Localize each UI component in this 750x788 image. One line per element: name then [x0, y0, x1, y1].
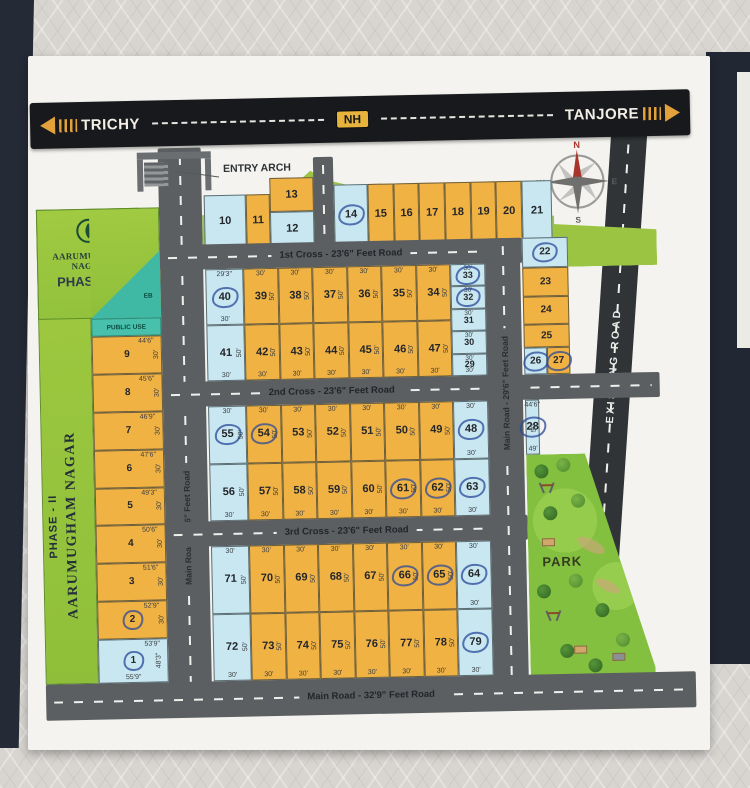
plot-dimension: 50' — [269, 291, 276, 300]
plot-dimension: 30' — [325, 269, 334, 276]
entry-connector-road — [313, 157, 335, 245]
plot-20: 20 — [496, 181, 523, 242]
plot-number: 9 — [124, 350, 130, 360]
plot-dimension: 30' — [402, 668, 411, 675]
plot-62: 6250'30' — [420, 459, 456, 517]
plot-dimension: 50' — [311, 641, 318, 650]
plot-dimension: 30' — [225, 548, 234, 555]
plot-number: 47 — [428, 343, 440, 354]
plot-dimension: 30' — [362, 405, 371, 412]
plot-72: 7250'30' — [212, 613, 251, 681]
plot-dimension: 30' — [333, 670, 342, 677]
plot-47: 4750'30' — [417, 320, 453, 377]
arrow-hatch-icon — [59, 119, 77, 132]
tree-icon — [537, 584, 551, 598]
plot-22: 22 — [522, 237, 569, 268]
plot-57: 5750'30' — [247, 462, 283, 520]
plot-dimension: 30' — [368, 669, 377, 676]
plot-dimension: 30' — [399, 508, 408, 515]
plot-dimension: 50' — [304, 291, 311, 300]
plot-dimension: 30' — [331, 546, 340, 553]
plot-73: 7350'30' — [250, 612, 286, 680]
plot-dimension: 30' — [223, 408, 232, 415]
plot-37: 30'3750' — [312, 266, 348, 323]
plot-dimension: 50' — [446, 483, 453, 492]
plot-dimension: 30' — [330, 510, 339, 517]
plot-dimension: 50' — [241, 575, 248, 584]
plot-dimension: 50' — [410, 426, 417, 435]
plot-7: 46'9"730' — [93, 411, 164, 450]
plot-dimension: 30' — [364, 509, 373, 516]
plot-number: 52 — [327, 427, 339, 438]
plot-number: 35 — [393, 288, 405, 299]
plot-dimension: 30' — [430, 368, 439, 375]
road-dashes — [171, 384, 652, 396]
plot-dimension: 30' — [434, 543, 443, 550]
plot-dimension: 50' — [444, 425, 451, 434]
plot-dimension: 30' — [228, 672, 237, 679]
plot-number: 70 — [261, 573, 273, 584]
compass-n: N — [573, 140, 580, 150]
compass-e: E — [611, 176, 617, 186]
plot-66: 30'6650' — [387, 542, 423, 610]
plot-dimension: 50' — [442, 288, 449, 297]
plot-number: 78 — [435, 637, 447, 648]
hut-icon — [574, 645, 587, 653]
plot-19: 19 — [470, 181, 497, 242]
plot-dimension: 30' — [327, 370, 336, 377]
plot-row-56-63: 5650'30'5750'30'5850'30'5950'30'6050'30'… — [209, 458, 490, 521]
plot-dimension: 50' — [449, 638, 456, 647]
plot-23: 23 — [522, 267, 569, 297]
plot-2: 52'9"230' — [97, 600, 168, 639]
plot-21: 21 — [521, 180, 552, 241]
plot-5: 49'3"530' — [95, 487, 166, 526]
plot-number: 48 — [465, 424, 477, 435]
plot-56: 5650'30' — [209, 463, 248, 521]
plot-number: 31 — [464, 315, 474, 324]
plot-number: 74 — [297, 640, 309, 651]
plot-59: 5950'30' — [316, 461, 352, 519]
plot-26: 26 — [524, 347, 548, 374]
road-dashes — [178, 156, 192, 692]
plot-68: 30'6850' — [318, 543, 354, 611]
plot-dimension: 30' — [158, 615, 165, 624]
plot-dimension: 50' — [242, 642, 249, 651]
plot-50: 30'5050' — [384, 402, 420, 460]
plot-28: 44'6"2850'49' — [525, 399, 540, 454]
plot-dimension: 50' — [276, 642, 283, 651]
plot-dimension: 30' — [154, 425, 161, 434]
plot-number: 73 — [262, 641, 274, 652]
plot-70: 30'7050' — [249, 545, 285, 613]
plot-dimension: 30' — [359, 268, 368, 275]
tree-icon — [616, 633, 630, 647]
plot-32: 30'32 — [451, 286, 486, 309]
entry-arch-label: ENTRY ARCH — [223, 162, 291, 175]
plot-29: 30'2930' — [452, 353, 487, 376]
plot-dimension: 30' — [293, 406, 302, 413]
plot-dimension: 30' — [361, 369, 370, 376]
plot-dimension: 50' — [345, 640, 352, 649]
plot-dimension: 30' — [156, 501, 163, 510]
plot-number: 51 — [361, 426, 373, 437]
plot-number: 42 — [256, 347, 268, 358]
park-path — [594, 576, 622, 597]
main-road-right-label: Main Road - 29'6" Feet Road — [499, 328, 512, 458]
plot-71: 30'7150' — [211, 546, 250, 614]
plot-number: 12 — [286, 223, 298, 234]
plot-number: 61 — [397, 483, 409, 494]
plot-dimension: 50' — [414, 639, 421, 648]
plot-dimension: 30' — [158, 577, 165, 586]
plot-10: 10 — [204, 195, 247, 248]
plot-dimension: 30' — [262, 547, 271, 554]
plot-number: 75 — [331, 639, 343, 650]
destination-left: TRICHY — [81, 115, 140, 133]
plot-dimension: 50' — [447, 570, 454, 579]
plot-dimension: 30' — [264, 671, 273, 678]
plot-dimension: 30' — [292, 370, 301, 377]
playground-icon — [545, 610, 563, 621]
plot-number: 66 — [399, 570, 411, 581]
plot-pair: 2627 — [524, 347, 571, 375]
plot-dimension: 50' — [339, 346, 346, 355]
plot-dimension: 30' — [153, 350, 160, 359]
plot-number: 62 — [431, 482, 443, 493]
plot-dimension: 30' — [365, 545, 374, 552]
plot-65: 30'6550' — [421, 541, 457, 609]
plot-dimension: 50' — [239, 487, 246, 496]
plot-dimension: 30' — [471, 667, 480, 674]
plot-number: 68 — [330, 572, 342, 583]
plot-dimension: 50' — [375, 427, 382, 436]
plot-75: 7550'30' — [319, 611, 355, 679]
cross-road-3-label: 3rd Cross - 23'6" Feet Road — [277, 524, 417, 538]
plot-dimension: 30' — [155, 463, 162, 472]
plot-dimension: 50' — [341, 428, 348, 437]
plot-55: 30'5550' — [208, 406, 247, 464]
cross-road-1-label: 1st Cross - 23'6" Feet Road — [271, 247, 410, 261]
park-label: PARK — [542, 554, 582, 570]
paper-sliver — [737, 72, 750, 348]
block-1: 29'3"4030'30'3950'30'3850'30'3750'30'365… — [205, 264, 452, 381]
plot-number: 40 — [219, 291, 231, 302]
west-plot-column: 44'6"930'45'6"830'46'9"730'47'6"630'49'3… — [92, 335, 169, 683]
plot-dimension: 50' — [338, 290, 345, 299]
plot-number: 39 — [255, 291, 267, 302]
public-use-band: PUBLIC USE — [91, 317, 161, 336]
plot-dimension: 52'9" — [144, 603, 160, 610]
plot-stack: 1312 — [269, 177, 314, 246]
plot-61: 6150'30' — [385, 459, 421, 517]
plot-number: 56 — [223, 487, 235, 498]
plot-dimension: 53'9" — [144, 640, 160, 647]
plot-48: 30'4830' — [453, 401, 489, 459]
plot-3: 51'6"330' — [96, 563, 167, 602]
plot-38: 30'3850' — [278, 267, 314, 324]
plot-number: 6 — [126, 464, 132, 474]
plot-number: 5 — [127, 501, 133, 511]
existing-road-label: EXISTING ROAD — [604, 308, 624, 424]
plot-dimension: 50' — [275, 574, 282, 583]
arch-beam — [137, 151, 211, 160]
plot-dimension: 30' — [261, 511, 270, 518]
plot-number: 38 — [289, 290, 301, 301]
plot-number: 54 — [258, 428, 270, 439]
plot-dimension: 50' — [237, 430, 244, 439]
plot-dimension: 44'6" — [524, 401, 540, 408]
plot-45: 4550'30' — [348, 322, 384, 379]
tree-icon — [588, 658, 602, 672]
arrow-right-icon — [665, 103, 680, 121]
plot-dimension: 50' — [443, 344, 450, 353]
plot-column-29-33: 30'3330'3230'3130'3030'2930' — [450, 264, 487, 377]
block-3: 30'7150'30'7050'30'6950'30'6850'30'6750'… — [211, 540, 494, 681]
plot-number: 59 — [328, 484, 340, 495]
plot-dimension: 50' — [272, 429, 279, 438]
plot-number: 63 — [466, 481, 478, 492]
plot-dimension: 50' — [308, 486, 315, 495]
plot-number: 41 — [220, 347, 232, 358]
plot-number: 69 — [295, 573, 307, 584]
plot-number: 26 — [530, 356, 541, 366]
plot-number: 1 — [130, 656, 136, 666]
plot-number: 55 — [221, 429, 233, 440]
public-use-label: PUBLIC USE — [107, 323, 147, 331]
plot-27: 27 — [547, 347, 571, 374]
plot-42: 4250'30' — [244, 324, 280, 381]
plot-64: 30'6430' — [456, 540, 492, 608]
plot-number: 36 — [358, 288, 370, 299]
plot-dimension: 51'6" — [143, 565, 159, 572]
cross-road-2-label: 2nd Cross - 23'6" Feet Road — [261, 384, 403, 398]
plot-dimension: 30' — [154, 388, 161, 397]
plot-dimension: 48'3" — [156, 653, 163, 669]
plot-58: 5850'30' — [282, 462, 318, 520]
plot-number: 21 — [531, 205, 543, 216]
road-dash-line — [381, 114, 553, 120]
plot-number: 33 — [463, 271, 473, 280]
plot-dimension: 50' — [344, 573, 351, 582]
plot-number: 16 — [400, 208, 412, 219]
plot-number: 27 — [553, 355, 564, 365]
plot-number: 71 — [224, 574, 236, 585]
plot-35: 30'3550' — [381, 265, 417, 322]
plot-17: 17 — [419, 182, 446, 243]
hut-icon — [612, 653, 625, 661]
plot-18: 18 — [444, 182, 471, 243]
plot-dimension: 30' — [466, 367, 475, 374]
plot-9: 44'6"930' — [92, 335, 163, 374]
plot-number: 79 — [469, 636, 481, 647]
plot-25: 25 — [523, 324, 569, 348]
plot-77: 7750'30' — [388, 609, 424, 677]
plot-4: 50'6"430' — [96, 525, 167, 564]
arrow-left-icon — [40, 117, 55, 135]
plot-dimension: 44'6" — [138, 337, 154, 344]
plot-number: 7 — [126, 426, 132, 436]
plot-number: 37 — [324, 289, 336, 300]
plot-74: 7450'30' — [285, 612, 321, 680]
plot-number: 3 — [129, 577, 135, 587]
plot-dimension: 30' — [470, 599, 479, 606]
plot-41: 4150'30' — [206, 325, 245, 382]
plot-number: 34 — [427, 287, 439, 298]
plot-dimension: 30' — [328, 406, 337, 413]
plot-dimension: 50' — [236, 348, 243, 357]
plot-dimension: 30' — [157, 539, 164, 548]
plot-12: 12 — [270, 211, 315, 246]
plot-number: 44 — [325, 345, 337, 356]
plot-30: 30'30 — [452, 331, 487, 354]
block-2: 30'5550'30'5450'30'5350'30'5250'30'5150'… — [208, 401, 490, 522]
plot-dimension: 30' — [400, 544, 409, 551]
plot-dimension: 50' — [407, 288, 414, 297]
plot-dimension: 30' — [396, 368, 405, 375]
map-content: EXISTING ROAD TRICHY NH TANJORE Main Ro — [21, 49, 717, 757]
destination-right: TANJORE — [565, 105, 639, 124]
arrow-hatch-icon — [643, 106, 661, 119]
plot-36: 30'3650' — [347, 266, 383, 323]
plot-number: 2 — [130, 615, 136, 625]
plot-11: 11 — [246, 194, 271, 246]
plot-number: 32 — [463, 293, 473, 302]
tree-icon — [543, 506, 557, 520]
plot-dimension: 50' — [408, 344, 415, 353]
plot-dimension: 30' — [466, 403, 475, 410]
plot-number: 8 — [125, 388, 131, 398]
plot-number: 13 — [285, 189, 297, 200]
plot-6: 47'6"630' — [94, 449, 165, 488]
plot-number: 65 — [433, 570, 445, 581]
plot-dimension: 30' — [296, 546, 305, 553]
plot-number: 20 — [503, 205, 515, 216]
plot-row-41-47: 4150'30'4250'30'4350'30'4450'30'4550'30'… — [206, 320, 452, 381]
eb-label: EB — [144, 293, 153, 300]
plot-24: 24 — [523, 296, 570, 325]
plot-31: 30'31 — [451, 308, 486, 331]
tree-icon — [595, 603, 609, 617]
plot-63: 6330' — [454, 458, 490, 516]
plot-dimension: 30' — [222, 372, 231, 379]
plot-dimension: 50' — [373, 289, 380, 298]
plot-28-area: 44'6"2850'49' — [525, 399, 579, 455]
plot-number: 15 — [375, 208, 387, 219]
plot-dimension: 50' — [377, 484, 384, 493]
plot-dimension: 30' — [431, 404, 440, 411]
tree-icon — [534, 464, 548, 478]
plot-67: 30'6750' — [352, 543, 388, 611]
plot-dimension: 30' — [469, 543, 478, 550]
plot-51: 30'5150' — [350, 403, 386, 461]
plot-dimension: 50' — [380, 639, 387, 648]
plot-number: 76 — [366, 639, 378, 650]
plot-row-72-79: 7250'30'7350'30'7450'30'7550'30'7650'30'… — [212, 608, 493, 681]
plot-number: 4 — [128, 539, 134, 549]
plot-dimension: 50' — [531, 422, 538, 431]
plot-dimension: 49'3" — [141, 489, 157, 496]
plot-dimension: 47'6" — [140, 451, 156, 458]
plot-dimension: 30' — [428, 267, 437, 274]
plot-dimension: 45'6" — [139, 375, 155, 382]
east-plot-column: 222324252627 — [522, 237, 571, 375]
top-plots-left: 10111312 — [203, 177, 314, 247]
main-road-bottom-label: Main Road - 32'9" Feet Road — [299, 689, 443, 703]
tree-icon — [571, 493, 585, 507]
plot-number: 17 — [426, 207, 438, 218]
plot-dimension: 49' — [528, 445, 537, 452]
playground-icon — [539, 482, 557, 493]
plot-53: 30'5350' — [281, 404, 317, 462]
plot-number: 50 — [396, 425, 408, 436]
plot-dimension: 30' — [397, 404, 406, 411]
plot-number: 30 — [464, 338, 474, 347]
plot-dimension: 29'3" — [216, 271, 232, 278]
plot-row-34-40: 29'3"4030'30'3950'30'3850'30'3750'30'365… — [205, 264, 451, 325]
plot-13: 13 — [269, 177, 314, 212]
plot-49: 30'4950' — [418, 401, 454, 459]
plot-number: 77 — [400, 638, 412, 649]
arch-hatch — [144, 162, 168, 186]
plot-number: 24 — [540, 305, 551, 315]
plot-16: 16 — [393, 183, 420, 244]
plot-number: 43 — [290, 346, 302, 357]
compass-s: S — [575, 215, 581, 225]
plot-79: 7930' — [457, 608, 493, 676]
plot-number: 11 — [252, 215, 264, 226]
tree-icon — [569, 574, 583, 588]
plot-14: 14 — [333, 184, 368, 245]
plot-dimension: 30' — [437, 667, 446, 674]
top-plots-right: 1415161718192021 — [333, 180, 552, 245]
plot-dimension: 50' — [378, 572, 385, 581]
plot-dimension: 30' — [258, 371, 267, 378]
plot-number: 14 — [345, 209, 357, 220]
plot-dimension: 50' — [413, 571, 420, 580]
plot-40: 29'3"4030' — [205, 269, 244, 326]
plot-43: 4350'30' — [279, 323, 315, 380]
plot-60: 6050'30' — [351, 460, 387, 518]
plot-46: 4650'30' — [382, 321, 418, 378]
tree-icon — [560, 644, 574, 658]
plot-number: 25 — [541, 331, 552, 341]
plot-number: 10 — [219, 215, 231, 226]
plot-dimension: 30' — [468, 507, 477, 514]
plot-33: 30'33 — [450, 264, 485, 287]
plot-dimension: 30' — [467, 449, 476, 456]
plot-number: 53 — [292, 428, 304, 439]
plot-39: 30'3950' — [243, 268, 279, 325]
road-dashes — [322, 165, 326, 237]
plot-76: 7650'30' — [354, 610, 390, 678]
plot-15: 15 — [367, 183, 394, 244]
road-dashes — [501, 246, 513, 685]
plot-78: 7850'30' — [423, 609, 459, 677]
plot-dimension: 30' — [394, 267, 403, 274]
plot-dimension: 50' — [342, 485, 349, 494]
plot-row-64-71: 30'7150'30'7050'30'6950'30'6850'30'6750'… — [211, 540, 492, 613]
plot-dimension: 30' — [433, 507, 442, 514]
plot-number: 18 — [452, 206, 464, 217]
plot-dimension: 30' — [256, 270, 265, 277]
park-area: PARK — [526, 452, 656, 677]
plot-number: 23 — [540, 277, 551, 287]
plot-dimension: 30' — [225, 512, 234, 519]
plot-dimension: 50' — [309, 573, 316, 582]
plot-1: 53'9"148'3"55'9" — [98, 638, 169, 683]
plot-dimension: 50' — [305, 347, 312, 356]
